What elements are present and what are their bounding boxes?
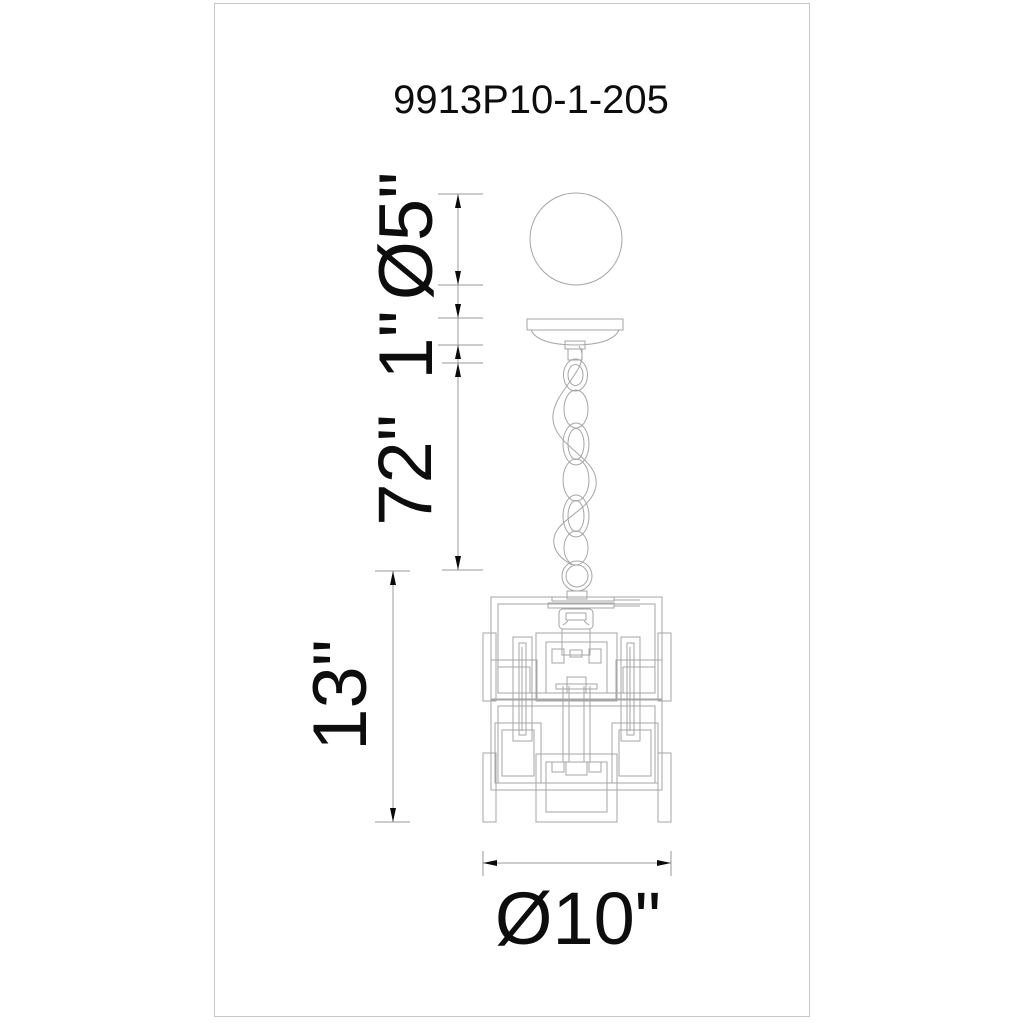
chain-outline: [553, 346, 596, 599]
cord-outline: [553, 346, 596, 565]
canopy-outline: [527, 319, 623, 360]
drawing-canvas: 9913P10-1-205 Ø5" 1" 72" 13" Ø10": [0, 0, 1024, 1024]
technical-line-art: [0, 0, 1024, 1024]
dimension-label-body-height: 13": [295, 545, 385, 845]
dimension-label-body-diameter: Ø10": [378, 872, 778, 964]
pendant-body-outline: [483, 597, 671, 822]
ball-outline: [530, 193, 622, 285]
